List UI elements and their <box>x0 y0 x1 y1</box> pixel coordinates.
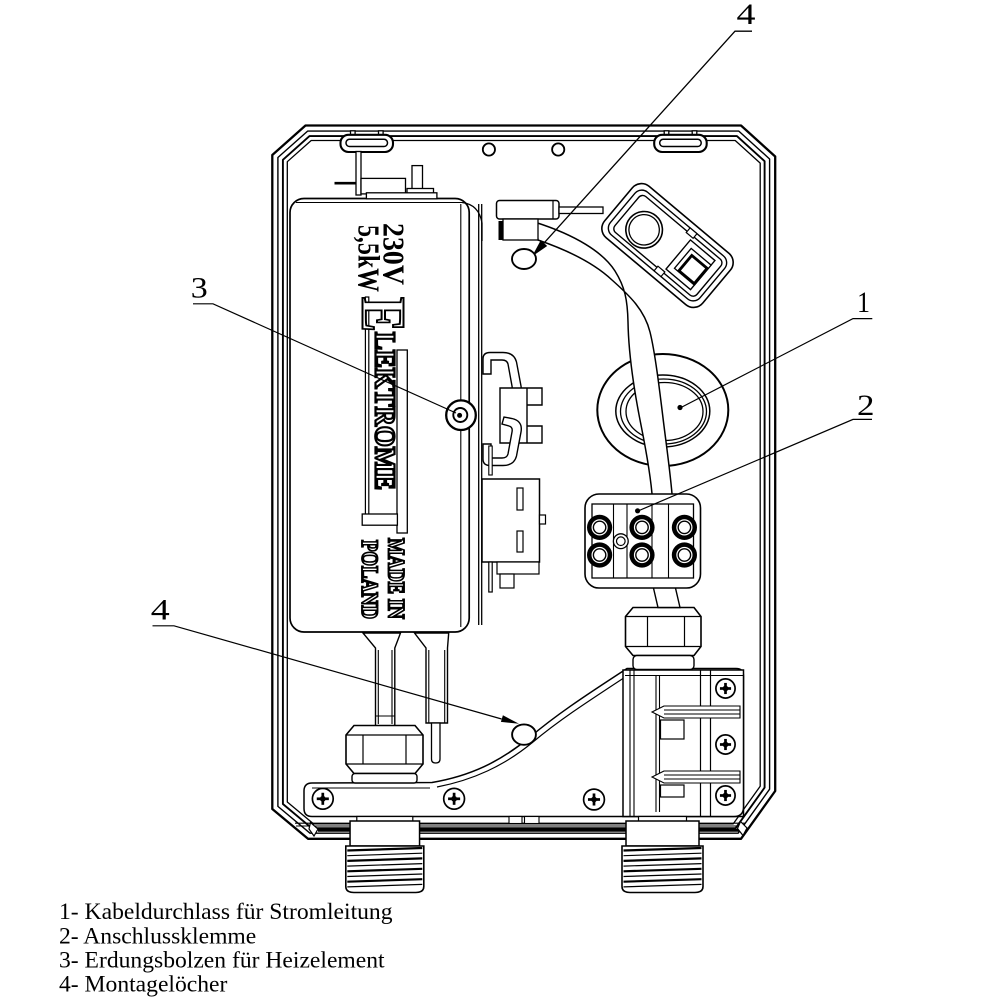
svg-text:POLAND: POLAND <box>357 540 382 619</box>
svg-text:1: 1 <box>857 287 870 319</box>
svg-text:4- Montagelöcher: 4- Montagelöcher <box>59 972 228 998</box>
svg-text:MADE IN: MADE IN <box>384 538 409 619</box>
svg-text:LEKTROME: LEKTROME <box>369 332 400 490</box>
svg-text:5,5kW: 5,5kW <box>352 225 387 292</box>
svg-text:2- Anschlussklemme: 2- Anschlussklemme <box>59 924 256 950</box>
svg-text:1- Kabeldurchlass für Stromlei: 1- Kabeldurchlass für Stromleitung <box>59 899 393 925</box>
svg-text:4: 4 <box>151 594 170 626</box>
svg-text:E: E <box>349 297 417 332</box>
svg-text:3: 3 <box>191 273 208 305</box>
svg-text:4: 4 <box>737 0 756 31</box>
svg-text:3- Erdungsbolzen für Heizeleme: 3- Erdungsbolzen für Heizelement <box>59 948 385 974</box>
svg-text:2: 2 <box>857 390 875 422</box>
